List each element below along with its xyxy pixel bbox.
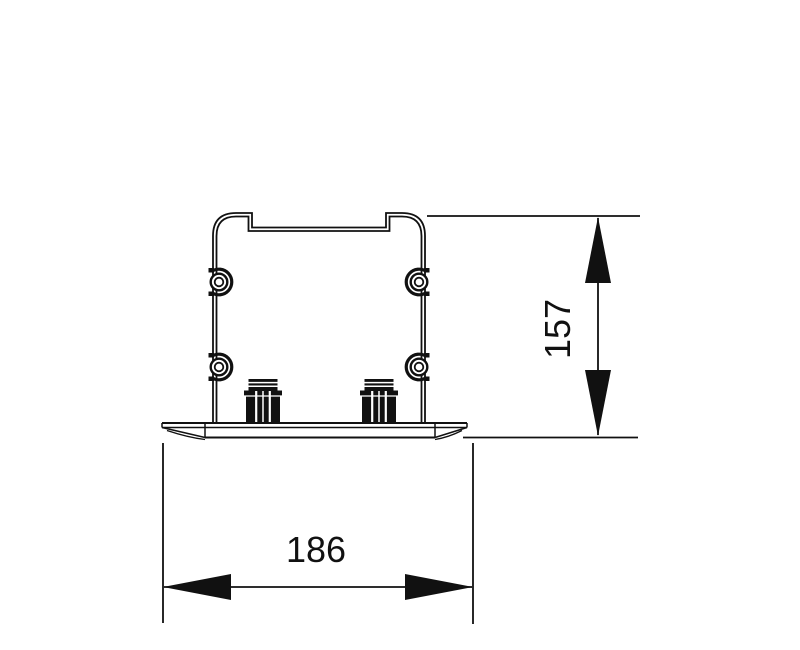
technical-drawing-canvas: 157 186 [0, 0, 800, 650]
dimension-height-label: 157 [537, 299, 578, 359]
terminal-post-left [244, 379, 282, 423]
screw-boss [209, 353, 232, 381]
flange-left-lip [167, 431, 205, 440]
flange-right-lip [435, 431, 462, 440]
arrowhead-left-icon [163, 574, 231, 600]
flange-right-bevel [435, 428, 467, 438]
dimension-width: 186 [163, 443, 473, 624]
arrowhead-right-icon [405, 574, 473, 600]
drawing-page: 157 186 [0, 0, 800, 650]
dimension-height: 157 [427, 216, 640, 438]
arrowhead-up-icon [585, 217, 611, 283]
screw-boss [406, 268, 429, 296]
arrowhead-down-icon [585, 370, 611, 436]
screw-boss [406, 353, 429, 381]
boss-inner-ring [215, 278, 224, 287]
boss-inner-ring [415, 363, 424, 372]
terminal-cap [365, 379, 394, 391]
dimension-width-label: 186 [286, 529, 346, 570]
boss-inner-ring [215, 363, 224, 372]
mounting-flange [162, 423, 467, 440]
screw-boss [209, 268, 232, 296]
boss-inner-ring [415, 278, 424, 287]
terminal-cap [249, 379, 278, 391]
terminal-post-right [360, 379, 398, 423]
